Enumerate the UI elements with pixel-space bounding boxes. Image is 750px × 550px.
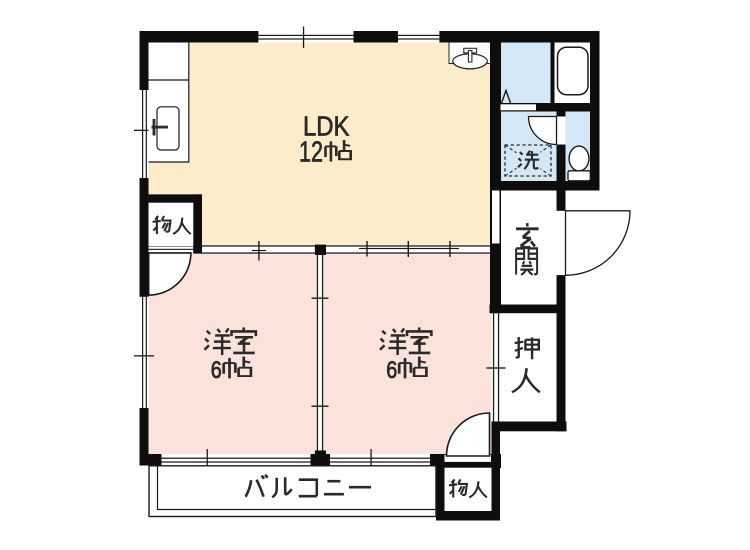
svg-text:12: 12 [299,136,323,168]
svg-text:6: 6 [211,357,222,384]
svg-text:6: 6 [386,357,397,384]
